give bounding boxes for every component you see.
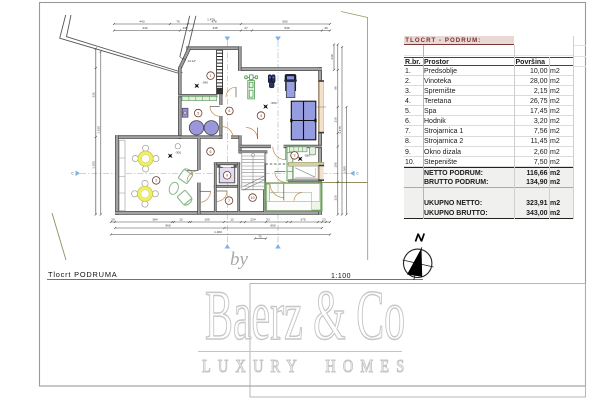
svg-text:5: 5 xyxy=(197,111,199,115)
svg-text:40: 40 xyxy=(324,26,328,30)
svg-text:1.060: 1.060 xyxy=(342,166,346,174)
svg-text:9: 9 xyxy=(226,174,228,178)
svg-text:432: 432 xyxy=(142,26,147,30)
svg-text:443: 443 xyxy=(139,20,144,24)
svg-text:1: 1 xyxy=(210,74,212,78)
svg-text:230: 230 xyxy=(334,117,338,122)
svg-text:330: 330 xyxy=(334,195,338,200)
svg-text:12: 12 xyxy=(179,218,183,222)
svg-text:6: 6 xyxy=(228,109,230,113)
svg-text:565: 565 xyxy=(282,20,287,24)
svg-text:27: 27 xyxy=(244,26,248,30)
svg-text:10: 10 xyxy=(251,196,255,200)
svg-text:23: 23 xyxy=(322,218,326,222)
svg-text:23: 23 xyxy=(266,218,270,222)
svg-text:C: C xyxy=(356,172,359,176)
svg-text:100: 100 xyxy=(204,218,209,222)
svg-text:345: 345 xyxy=(212,26,217,30)
svg-text:195: 195 xyxy=(334,162,338,167)
svg-text:6: 6 xyxy=(210,150,212,154)
svg-text:7: 7 xyxy=(228,199,230,203)
svg-text:1.105: 1.105 xyxy=(92,161,96,169)
svg-text:240: 240 xyxy=(330,54,334,59)
svg-text:650: 650 xyxy=(270,224,275,228)
svg-text:Tlocrt PODRUMA: Tlocrt PODRUMA xyxy=(48,270,118,279)
svg-text:3: 3 xyxy=(294,154,296,158)
svg-text:75: 75 xyxy=(258,234,262,238)
svg-text:135: 135 xyxy=(182,26,187,30)
svg-text:1.630: 1.630 xyxy=(97,126,101,134)
svg-text:-580: -580 xyxy=(304,153,310,157)
svg-text:-580: -580 xyxy=(271,101,277,105)
svg-text:530: 530 xyxy=(284,26,289,30)
svg-text:4: 4 xyxy=(260,114,262,118)
svg-text:375: 375 xyxy=(300,218,305,222)
svg-text:-300: -300 xyxy=(175,150,181,154)
svg-text:-040: -040 xyxy=(202,80,208,84)
svg-text:76: 76 xyxy=(176,20,180,24)
svg-text:14.12°: 14.12° xyxy=(188,59,198,63)
svg-text:88: 88 xyxy=(334,86,338,90)
svg-text:960: 960 xyxy=(165,224,170,228)
svg-text:C: C xyxy=(71,172,74,176)
svg-text:12: 12 xyxy=(230,218,234,222)
svg-text:20: 20 xyxy=(111,218,115,222)
svg-text:2: 2 xyxy=(155,179,157,183)
svg-text:384: 384 xyxy=(152,218,157,222)
svg-text:1.460: 1.460 xyxy=(214,230,222,234)
svg-text:224: 224 xyxy=(250,218,255,222)
svg-text:1.175: 1.175 xyxy=(338,126,342,134)
svg-text:235: 235 xyxy=(92,92,96,97)
svg-text:478: 478 xyxy=(211,20,216,24)
